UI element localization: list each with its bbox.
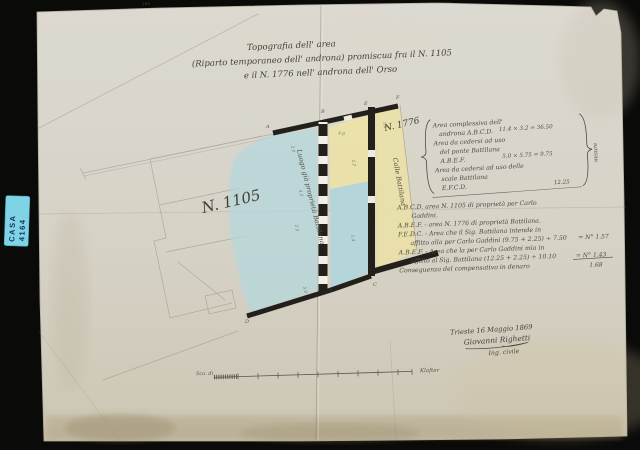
film-frame-number: 184 bbox=[142, 1, 150, 7]
computation-line: A.B.E.F. bbox=[439, 157, 465, 165]
scale-left-label: Sca. di bbox=[196, 371, 214, 377]
computation-line: E.F.C.D. bbox=[441, 184, 467, 192]
archive-sticker: CASA 4164 bbox=[4, 196, 30, 247]
corner-letter: B bbox=[320, 109, 325, 115]
legend-value: = N° 1.57 bbox=[578, 233, 609, 241]
corner-letter: A bbox=[265, 124, 270, 130]
corner-letter: E bbox=[363, 101, 368, 107]
wash-androna-yellow bbox=[329, 115, 370, 189]
corner-letter: F bbox=[395, 95, 400, 101]
photo-backdrop: 184 185 bbox=[0, 0, 640, 450]
legend-value: 1.68 bbox=[589, 261, 603, 268]
sticker-text-bottom: 4164 bbox=[17, 218, 27, 241]
corner-letter: C bbox=[373, 282, 377, 288]
computation-side-note: misure bbox=[593, 142, 600, 162]
computation-value: 12.25 bbox=[554, 179, 571, 186]
plan-photo: 184 185 bbox=[0, 0, 640, 450]
scale-right-label: Klafter bbox=[419, 368, 440, 374]
legend-line: Gaddini. bbox=[411, 212, 438, 220]
corner-letter: D bbox=[244, 319, 249, 325]
sticker-text-top: CASA bbox=[7, 214, 17, 242]
